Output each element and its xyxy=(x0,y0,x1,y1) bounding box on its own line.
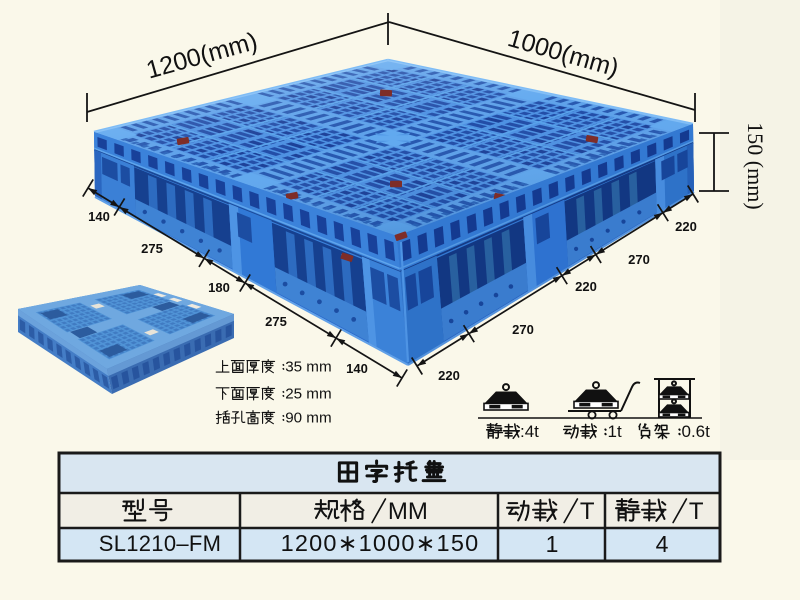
svg-text:220: 220 xyxy=(675,219,697,234)
svg-text:T: T xyxy=(689,498,704,525)
svg-text:270: 270 xyxy=(512,322,534,337)
svg-text:4: 4 xyxy=(656,531,669,557)
svg-text:0.6t: 0.6t xyxy=(682,422,711,441)
svg-text:270: 270 xyxy=(628,252,650,267)
svg-text:220: 220 xyxy=(438,368,460,383)
svg-text:220: 220 xyxy=(575,279,597,294)
svg-text:180: 180 xyxy=(208,280,230,295)
svg-text:140: 140 xyxy=(88,209,110,224)
svg-text:90 mm: 90 mm xyxy=(285,410,331,427)
svg-text:275: 275 xyxy=(141,241,163,256)
svg-text:1: 1 xyxy=(546,531,559,557)
svg-text::4t: :4t xyxy=(520,422,539,441)
svg-text:T: T xyxy=(580,498,595,525)
svg-text:150 (mm): 150 (mm) xyxy=(743,122,768,209)
svg-text:1200∗1000∗150: 1200∗1000∗150 xyxy=(281,530,480,556)
svg-text:25 mm: 25 mm xyxy=(285,386,331,403)
svg-text:140: 140 xyxy=(346,361,368,376)
svg-text:1t: 1t xyxy=(608,422,622,441)
svg-text:35 mm: 35 mm xyxy=(285,359,331,376)
svg-text:275: 275 xyxy=(265,314,287,329)
svg-text:MM: MM xyxy=(388,498,428,525)
svg-text:SL1210–FM: SL1210–FM xyxy=(99,531,222,556)
